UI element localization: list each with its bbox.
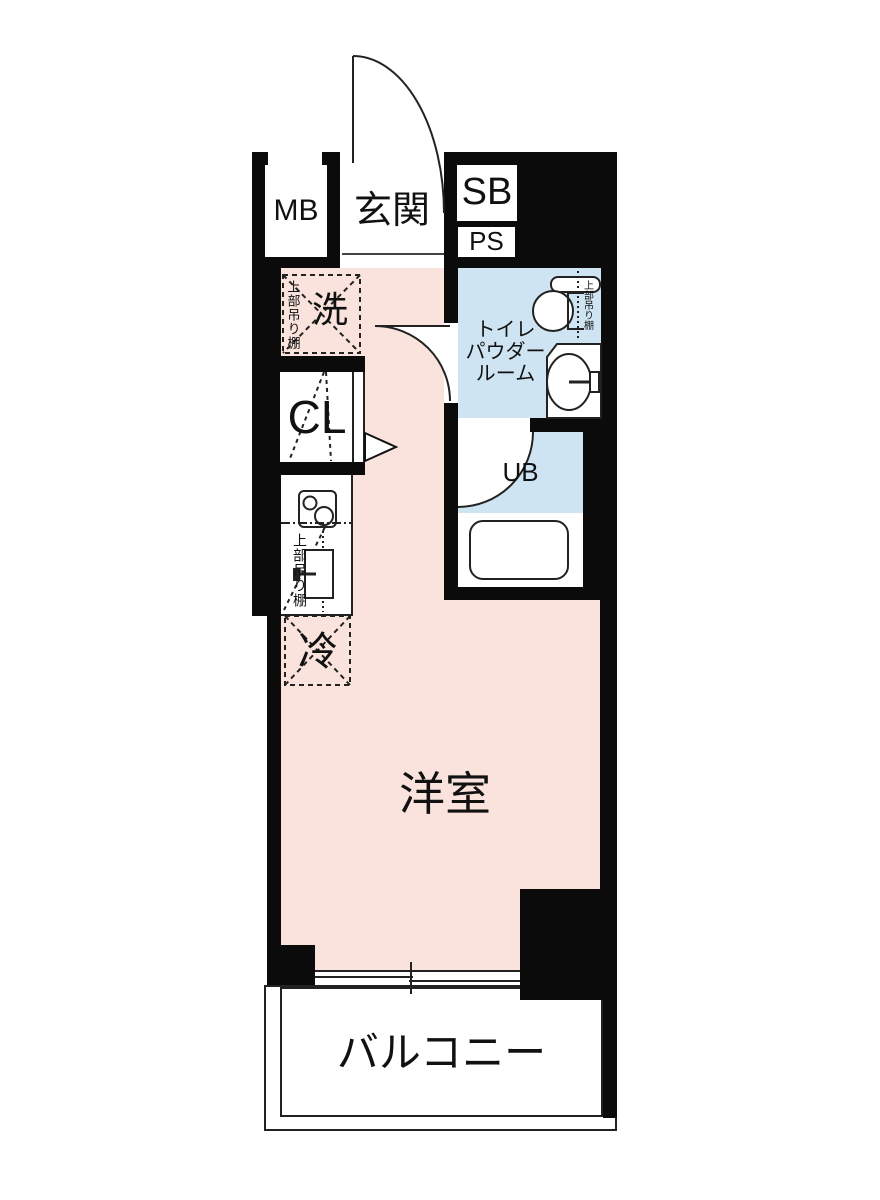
kitchen-shelf-label: 上部吊り棚 (291, 527, 309, 613)
wall-mid-upper (444, 268, 458, 323)
entrance-label: 玄関 (340, 168, 444, 256)
wall-toilet-right (601, 268, 617, 432)
wall-left-upper (252, 268, 281, 616)
meter-box-label: MB (265, 165, 327, 257)
window-strip (315, 970, 520, 987)
bath-tub-area (458, 513, 583, 587)
closet-label: CL (280, 372, 354, 462)
washer-shelf-label: 上部吊り棚 (284, 276, 302, 353)
closet-door-strip (354, 372, 365, 462)
wall-left-lower (267, 616, 281, 985)
washer-label: 洗 (305, 288, 355, 332)
wall-band-toilet-ub (530, 418, 617, 432)
powder-room-label-line2: パウダー (466, 341, 546, 363)
room-floor-window-edge (315, 945, 520, 970)
wall-block-bottom-right (520, 889, 617, 1000)
wall-mid-lower (444, 403, 458, 600)
balcony-label: バルコニー (290, 1028, 593, 1078)
wall-balcony-right (603, 1000, 617, 1118)
wall-band-closet-kitchen (281, 462, 365, 475)
pipe-space-label: PS (458, 227, 515, 257)
wall-step-bottom-left (267, 945, 315, 985)
wall-notch-above-mb (268, 152, 322, 165)
powder-room-label-line1: トイレ (476, 319, 536, 341)
wall-room-right (600, 600, 617, 889)
shoe-box-label: SB (457, 165, 517, 221)
room-floor-lower (281, 889, 520, 945)
western-room-label: 洋室 (345, 766, 545, 822)
wall-ub-right (583, 432, 617, 600)
fridge-label: 冷 (293, 628, 343, 676)
toilet-shelf-label: 上部吊り棚 (580, 271, 594, 339)
wall-band-washer-closet (281, 356, 365, 372)
powder-room-label: トイレ パウダー ルーム (448, 316, 563, 388)
unit-bath-label: UB (458, 432, 583, 513)
powder-room-label-line3: ルーム (476, 363, 535, 385)
floor-plan: MB 玄関 SB PS 洗 上部吊り棚 CL 上部吊り棚 冷 トイレ パウダー … (0, 0, 880, 1200)
ub-door-opening (458, 418, 530, 432)
wall-ub-bottom (458, 587, 583, 600)
